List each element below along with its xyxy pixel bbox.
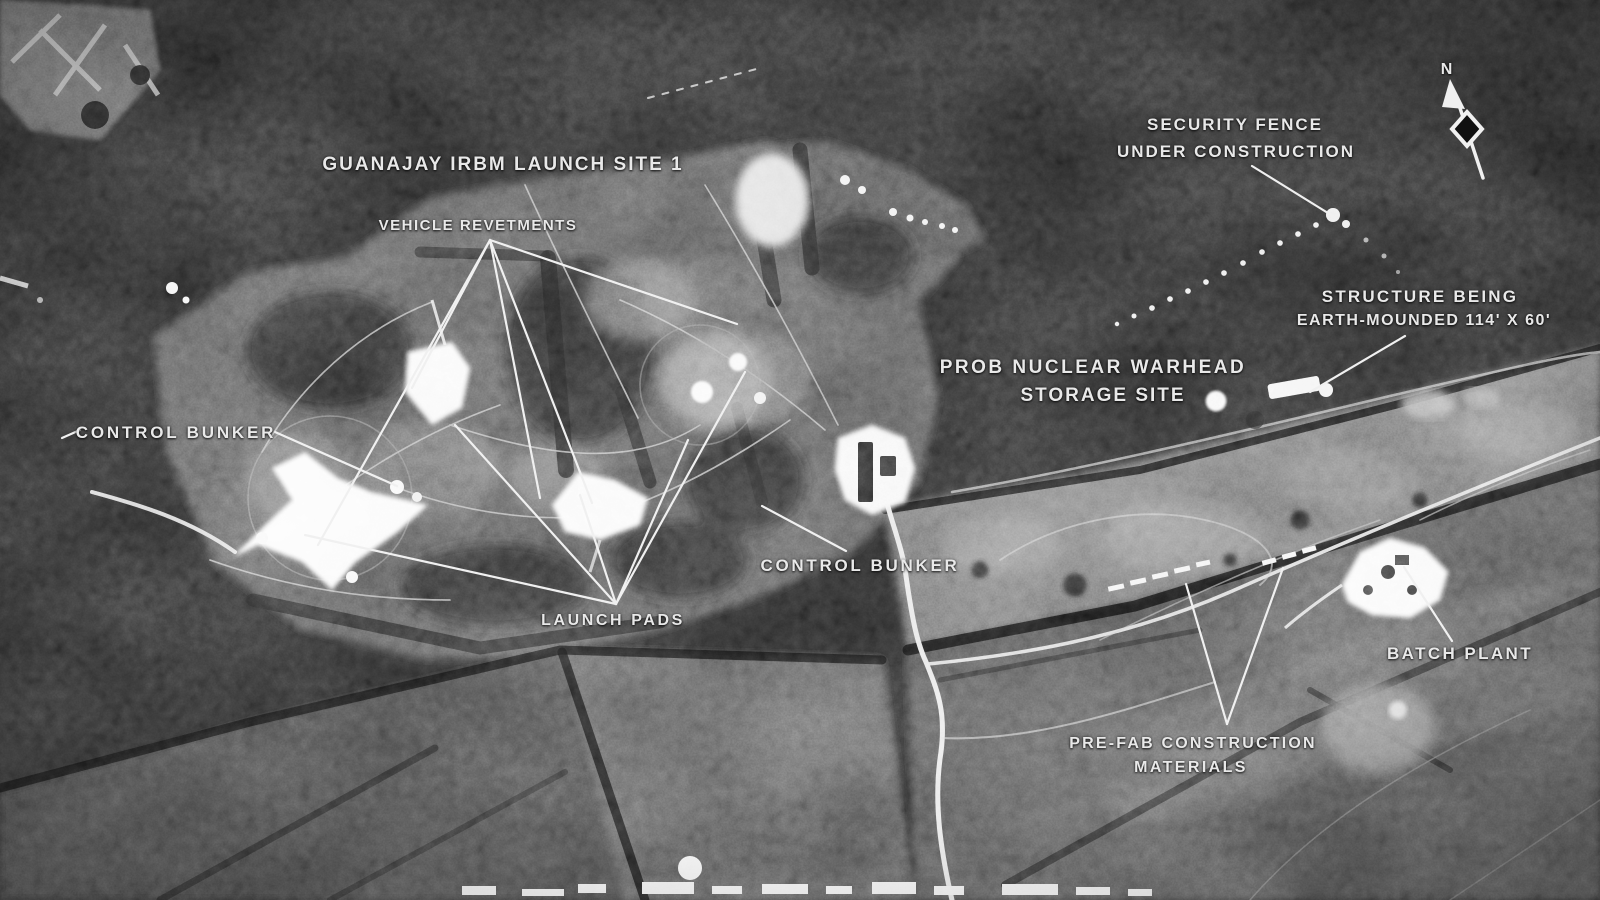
label-site-title: GUANAJAY IRBM LAUNCH SITE 1 xyxy=(322,155,683,174)
reconnaissance-photo-board: GUANAJAY IRBM LAUNCH SITE 1 VEHICLE REVE… xyxy=(0,0,1600,900)
label-structure-mounded-line2: EARTH-MOUNDED 114' X 60' xyxy=(1297,313,1551,329)
label-vehicle-revetments: VEHICLE REVETMENTS xyxy=(379,218,578,233)
label-batch-plant: BATCH PLANT xyxy=(1387,645,1533,662)
label-warhead-storage-line1: PROB NUCLEAR WARHEAD xyxy=(940,358,1247,377)
label-control-bunker-center: CONTROL BUNKER xyxy=(761,557,960,574)
label-north: N xyxy=(1441,62,1454,78)
label-security-fence-line2: UNDER CONSTRUCTION xyxy=(1117,143,1355,160)
label-prefab-line2: MATERIALS xyxy=(1134,760,1248,776)
label-structure-mounded-line1: STRUCTURE BEING xyxy=(1322,288,1518,305)
label-control-bunker-left: CONTROL BUNKER xyxy=(76,424,276,441)
label-warhead-storage-line2: STORAGE SITE xyxy=(1020,386,1185,405)
aerial-photo xyxy=(0,0,1600,900)
vignette xyxy=(0,0,1600,900)
label-prefab-line1: PRE-FAB CONSTRUCTION xyxy=(1069,736,1317,752)
label-security-fence-line1: SECURITY FENCE xyxy=(1147,116,1323,133)
label-launch-pads: LAUNCH PADS xyxy=(541,613,685,629)
